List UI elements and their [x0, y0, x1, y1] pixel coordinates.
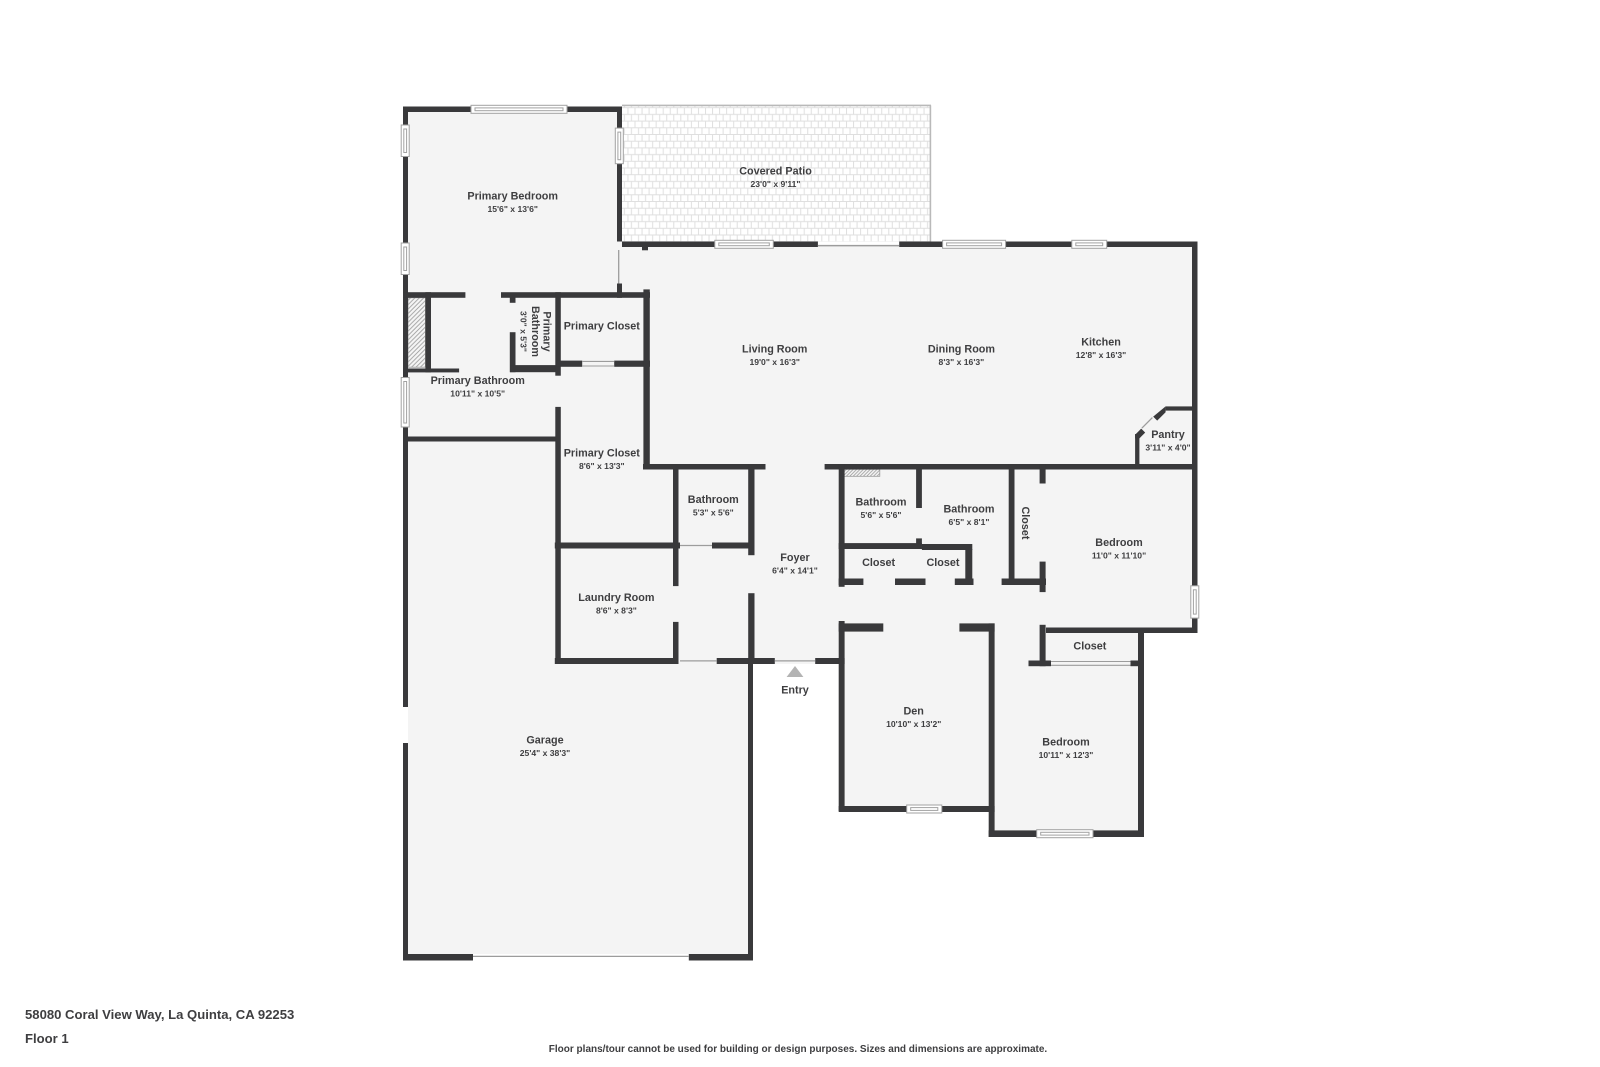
svg-text:58080 Coral View Way, La Quint: 58080 Coral View Way, La Quinta, CA 9225… [25, 1007, 294, 1022]
svg-text:15'6" x 13'6": 15'6" x 13'6" [487, 204, 537, 214]
svg-text:Den: Den [903, 706, 923, 718]
svg-text:23'0" x 9'11": 23'0" x 9'11" [751, 179, 801, 189]
svg-text:Garage: Garage [526, 735, 563, 747]
svg-text:Dining Room: Dining Room [928, 344, 995, 356]
svg-text:Entry: Entry [781, 685, 809, 697]
svg-text:25'4" x 38'3": 25'4" x 38'3" [520, 748, 570, 758]
svg-text:Closet: Closet [1019, 507, 1031, 540]
svg-text:Primary: Primary [541, 311, 553, 351]
svg-text:Floor plans/tour cannot be use: Floor plans/tour cannot be used for buil… [549, 1044, 1048, 1055]
svg-text:6'4" x 14'1": 6'4" x 14'1" [772, 566, 818, 576]
svg-text:Foyer: Foyer [780, 552, 810, 564]
svg-text:8'6" x 13'3": 8'6" x 13'3" [579, 461, 625, 471]
svg-text:10'11" x 10'5": 10'11" x 10'5" [450, 389, 505, 399]
svg-text:19'0" x 16'3": 19'0" x 16'3" [749, 357, 799, 367]
svg-text:6'5" x 8'1": 6'5" x 8'1" [949, 517, 990, 527]
svg-text:Primary Bathroom: Primary Bathroom [431, 375, 525, 387]
svg-text:Closet: Closet [862, 557, 895, 569]
svg-text:Living Room: Living Room [742, 344, 807, 356]
svg-text:Primary Bedroom: Primary Bedroom [467, 191, 558, 203]
svg-text:12'8" x 16'3": 12'8" x 16'3" [1076, 350, 1126, 360]
svg-text:Bedroom: Bedroom [1042, 737, 1089, 749]
svg-text:Closet: Closet [927, 557, 960, 569]
svg-text:10'11" x 12'3": 10'11" x 12'3" [1039, 750, 1094, 760]
svg-text:8'6" x 8'3": 8'6" x 8'3" [596, 606, 637, 616]
svg-text:3'11" x 4'0": 3'11" x 4'0" [1145, 443, 1190, 453]
svg-text:8'3" x 16'3": 8'3" x 16'3" [939, 357, 985, 367]
svg-text:Covered Patio: Covered Patio [739, 166, 812, 178]
svg-text:Bathroom: Bathroom [688, 494, 739, 506]
svg-text:5'3" x 5'6": 5'3" x 5'6" [693, 508, 734, 518]
svg-text:3'0" x 5'3": 3'0" x 5'3" [519, 311, 529, 352]
svg-text:11'0" x 11'10": 11'0" x 11'10" [1092, 551, 1146, 561]
svg-text:Closet: Closet [1073, 641, 1106, 653]
svg-text:Bathroom: Bathroom [856, 497, 907, 509]
svg-text:Kitchen: Kitchen [1081, 337, 1121, 349]
svg-text:Bedroom: Bedroom [1095, 537, 1142, 549]
svg-text:10'10" x 13'2": 10'10" x 13'2" [886, 719, 941, 729]
svg-text:Floor 1: Floor 1 [25, 1031, 69, 1046]
svg-text:5'6" x 5'6": 5'6" x 5'6" [861, 510, 902, 520]
svg-text:Pantry: Pantry [1151, 429, 1185, 441]
svg-text:Bathroom: Bathroom [944, 504, 995, 516]
svg-text:Laundry Room: Laundry Room [578, 592, 654, 604]
svg-text:Primary Closet: Primary Closet [564, 448, 641, 460]
svg-text:Bathroom: Bathroom [529, 306, 541, 357]
svg-text:Primary Closet: Primary Closet [564, 321, 641, 333]
